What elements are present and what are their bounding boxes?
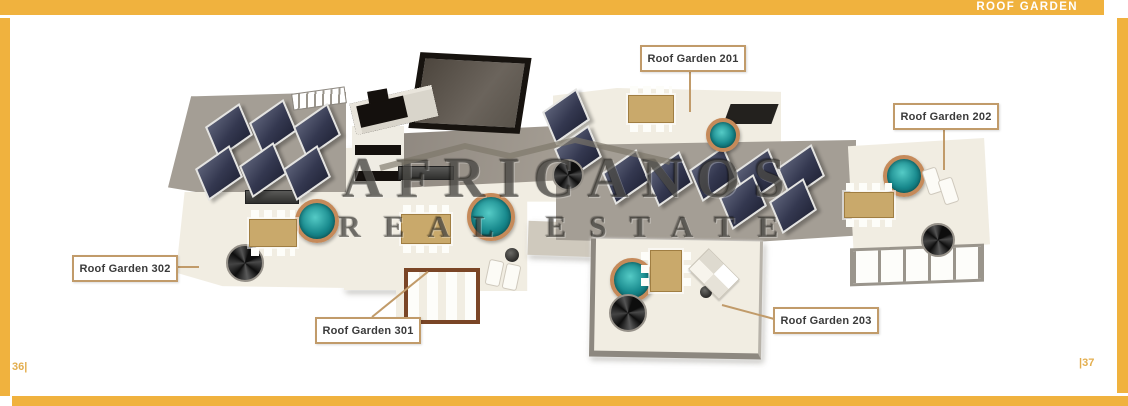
dining-table-203 [650, 250, 682, 292]
label-leader-302 [178, 266, 199, 268]
label-roof-garden-203: Roof Garden 203 [773, 307, 879, 334]
spiral-staircase-203 [609, 294, 647, 332]
hot-tub-302 [295, 199, 339, 243]
pergola-202 [850, 244, 984, 287]
label-roof-garden-301: Roof Garden 301 [315, 317, 421, 344]
hot-tub-201 [706, 118, 740, 152]
label-leader-201 [689, 72, 691, 112]
spiral-staircase-202 [921, 223, 955, 257]
kitchen-counter-301 [398, 166, 454, 180]
pergola-301 [404, 268, 480, 324]
label-roof-garden-201: Roof Garden 201 [640, 45, 746, 72]
dining-table-201 [628, 95, 674, 123]
dining-table-302 [249, 219, 297, 247]
spiral-staircase-center [552, 159, 584, 191]
dining-table-301 [401, 214, 451, 244]
stairwell-rooms [352, 126, 404, 198]
label-roof-garden-202: Roof Garden 202 [893, 103, 999, 130]
bbq-grill [505, 248, 519, 262]
label-leader-202 [943, 130, 945, 170]
floorplan-illustration: AFRICANOS REAL ESTATE [0, 0, 1128, 406]
dining-table-202 [844, 192, 894, 218]
brochure-page: ROOF GARDEN 36| |37 [0, 0, 1128, 406]
label-roof-garden-302: Roof Garden 302 [72, 255, 178, 282]
hot-tub-301 [467, 193, 515, 241]
